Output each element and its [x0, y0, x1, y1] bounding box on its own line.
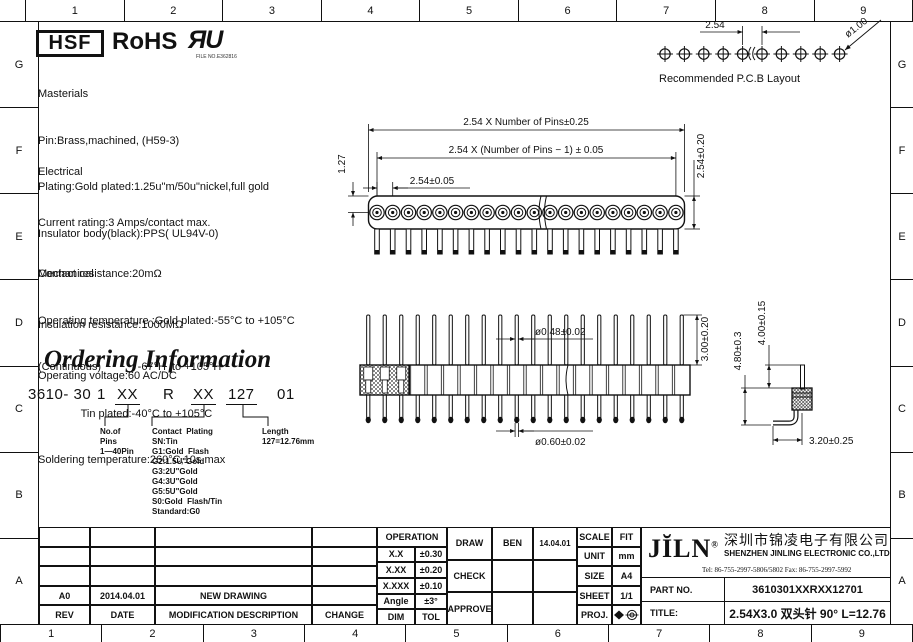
ruler-label: C	[898, 403, 906, 415]
pn-seg-01: 01	[277, 386, 295, 403]
ruler-bottom-1: 1	[0, 625, 101, 642]
company-name-en: SHENZHEN JINLING ELECTRONIC CO.,LTD	[724, 549, 890, 558]
ruler-label: 1	[48, 628, 54, 640]
rev-cell	[90, 547, 155, 567]
ruler-left-A: A	[0, 538, 38, 625]
contact-plating-label: Contact Plating SN:Tin G1:Gold Flash G2:…	[152, 427, 222, 517]
mechanical-title: Mechanical	[38, 267, 295, 283]
ruler-top-4: 4	[321, 0, 420, 21]
ruler-bottom-3: 3	[203, 625, 304, 642]
rev-cell	[90, 566, 155, 586]
ruler-bottom-5: 5	[405, 625, 506, 642]
dim-pitch: 2.54±0.05	[410, 176, 455, 187]
ruler-label: 2	[149, 628, 155, 640]
length-label: Length 127=12.76mm	[262, 427, 314, 447]
ruler-label: 2	[170, 5, 176, 17]
ruler-left-F: F	[0, 107, 38, 193]
ul-recognized-icon: ЯU	[188, 26, 222, 55]
ruler-label: C	[15, 403, 23, 415]
rohs-label: RoHS	[112, 28, 177, 56]
tol-label: X.XXX	[377, 578, 415, 594]
pn-base: 3610- 30	[28, 386, 91, 403]
ruler-label: 3	[269, 5, 275, 17]
signoff-table: DRAW BEN 14.04.01 CHECK APPROVE	[447, 527, 577, 625]
ul-mark-text: ЯU	[188, 26, 222, 54]
tol-value: TOL	[415, 609, 447, 625]
ruler-top-3: 3	[222, 0, 321, 21]
part-no-value: 3610301XXRXX12701	[725, 578, 890, 601]
top-pin-row	[367, 315, 684, 365]
ruler-left-D: D	[0, 279, 38, 365]
rev-header-change: CHANGE	[312, 605, 377, 625]
ruler-label: 8	[757, 628, 763, 640]
dim-pin-height: 4.00±0.15	[757, 300, 768, 345]
ruler-right-C: C	[891, 366, 913, 452]
ruler-label: A	[898, 575, 905, 587]
ruler-label: E	[15, 231, 22, 243]
draw-name: BEN	[492, 527, 533, 560]
sectioned-pin-profiles	[364, 367, 406, 393]
tol-value: ±0.20	[415, 562, 447, 578]
ruler-bottom-7: 7	[608, 625, 709, 642]
dim-top-pin-dia: ø0.48±0.02	[535, 327, 586, 338]
dim-overall-width: 2.54 X Number of Pins±0.25	[463, 117, 589, 128]
ruler-top-5: 5	[419, 0, 518, 21]
draw-label: DRAW	[447, 527, 492, 560]
company-name-cn: 深圳市锦凌电子有限公司	[724, 530, 889, 550]
front-view-drawing: ø0.48±0.02 ø0.60±0.02 3.00±0.20	[338, 295, 714, 460]
tol-value: ±3°	[415, 594, 447, 610]
pcb-caption: Recommended P.C.B Layout	[659, 73, 800, 85]
dim-total-height: 4.80±0.3	[733, 331, 744, 370]
ruler-label: 5	[453, 628, 459, 640]
ruler-right-A: A	[891, 538, 913, 625]
proj-label: PROJ.	[577, 605, 612, 625]
tol-label: Angle	[377, 594, 415, 610]
ruler-left-G: G	[0, 21, 38, 107]
ruler-right-E: E	[891, 193, 913, 279]
pcb-layout-drawing: 2.54 ø1.00 Recommended P.C.B Layout	[645, 18, 890, 90]
top-view-drawing: 2.54 X Number of Pins±0.25 2.54 X (Numbe…	[338, 112, 710, 262]
check-date	[533, 560, 577, 593]
mechanical-line: Operating temperature :Gold plated:-55°C…	[38, 314, 295, 330]
ruler-label: D	[898, 317, 906, 329]
hsf-logo: HSF	[36, 30, 104, 57]
connector-body-side-view	[792, 388, 812, 410]
ruler-right-B: B	[891, 452, 913, 538]
rohs-text: RoHS	[112, 28, 177, 55]
pins-count-label: No.of Pins 1—40Pin	[100, 427, 134, 457]
pn-seg-xx1: XX	[115, 386, 140, 405]
pn-seg-1: 1	[97, 386, 106, 403]
dim-bottom-pin-dia: ø0.60±0.02	[535, 437, 586, 448]
ruler-left: G F E D C B A	[0, 21, 38, 625]
rev-header-desc: MODIFICATION DESCRIPTION	[155, 605, 312, 625]
scale-value: FIT	[612, 527, 641, 547]
ruler-bottom-9: 9	[811, 625, 913, 642]
ruler-top-6: 6	[518, 0, 617, 21]
rev-header-rev: REV	[39, 605, 90, 625]
rev-change	[312, 586, 377, 606]
registered-mark: ®	[711, 539, 719, 549]
ordering-title: Ordering Information	[44, 346, 271, 374]
ruler-left-B: B	[0, 452, 38, 538]
approve-label: APPROVE	[447, 592, 492, 625]
ruler-label: 3	[251, 628, 257, 640]
company-block: JĬLN® 深圳市锦凌电子有限公司 SHENZHEN JINLING ELECT…	[641, 527, 891, 625]
rev-description: NEW DRAWING	[155, 586, 312, 606]
rev-cell	[312, 566, 377, 586]
projection-symbol-icon	[612, 605, 641, 625]
dim-top-pin-length: 3.00±0.20	[700, 316, 711, 361]
ruler-label: 6	[565, 5, 571, 17]
unit-label: UNIT	[577, 547, 612, 567]
electrical-title: Electrical	[38, 164, 210, 181]
draw-date: 14.04.01	[533, 527, 577, 560]
rev-cell	[155, 527, 312, 547]
tol-value: ±0.30	[415, 547, 447, 563]
approve-name	[492, 592, 533, 625]
sheet-value: 1/1	[612, 586, 641, 606]
check-label: CHECK	[447, 560, 492, 593]
ruler-label: B	[15, 489, 22, 501]
ruler-right: G F E D C B A	[891, 21, 913, 625]
ruler-label: 7	[663, 5, 669, 17]
check-name	[492, 560, 533, 593]
dim-foot-length: 3.20±0.25	[809, 436, 854, 447]
dim-body-depth: 2.54±0.20	[696, 133, 707, 178]
ruler-label: A	[15, 575, 22, 587]
rev-cell	[312, 527, 377, 547]
ruler-right-F: F	[891, 107, 913, 193]
tol-label: DIM	[377, 609, 415, 625]
ruler-right-D: D	[891, 279, 913, 365]
ordering-title-text: Ordering Information	[44, 346, 271, 373]
rev-cell	[39, 547, 90, 567]
drawing-sheet: 1 2 3 4 5 6 7 8 9 1 2 3 4 5 6 7 8 9 G F …	[0, 0, 913, 642]
approve-date	[533, 592, 577, 625]
ruler-top-1: 1	[25, 0, 124, 21]
dim-pin-span: 2.54 X (Number of Pins − 1) ± 0.05	[449, 145, 604, 156]
ruler-label: 8	[762, 5, 768, 17]
revision-table: A0 2014.04.01 NEW DRAWING REV DATE MODIF…	[39, 527, 377, 625]
title-label: TITLE:	[642, 602, 725, 624]
size-label: SIZE	[577, 566, 612, 586]
ruler-left-E: E	[0, 193, 38, 279]
pn-seg-127: 127	[226, 386, 257, 405]
ruler-top-2: 2	[124, 0, 223, 21]
pn-seg-r: R	[163, 386, 174, 403]
electrical-line: Current rating:3 Amps/contact max.	[38, 215, 210, 232]
dim-edge-offset: 1.27	[338, 154, 348, 174]
ruler-label: 6	[555, 628, 561, 640]
ruler-label: 1	[72, 5, 78, 17]
ruler-label: 7	[656, 628, 662, 640]
dim-pcb-hole: ø1.00	[843, 18, 870, 40]
ruler-bottom: 1 2 3 4 5 6 7 8 9	[0, 625, 913, 642]
ruler-label: G	[15, 59, 24, 71]
title-value: 2.54X3.0 双头针 90° L=12.76	[725, 602, 890, 624]
bottom-pin-row	[366, 395, 685, 423]
tol-label: X.XX	[377, 562, 415, 578]
pin-row-bottom	[375, 229, 679, 254]
tolerance-header: OPERATION	[377, 527, 447, 547]
vertical-pin	[801, 365, 805, 389]
ruler-label: B	[898, 489, 905, 501]
tolerance-table: OPERATION X.X ±0.30 X.XX ±0.20 X.XXX ±0.…	[377, 527, 447, 625]
ruler-bottom-4: 4	[304, 625, 405, 642]
rev-cell	[155, 566, 312, 586]
rev-cell	[155, 547, 312, 567]
ruler-label: 4	[352, 628, 358, 640]
ruler-bottom-2: 2	[101, 625, 202, 642]
company-logo-text: JĬLN	[648, 534, 711, 563]
side-view-drawing: 4.80±0.3 4.00±0.15 3.20±0.25	[725, 283, 890, 458]
hsf-text: HSF	[49, 32, 92, 55]
rev-date: 2014.04.01	[90, 586, 155, 606]
materials-title: Masterials	[38, 87, 269, 103]
tol-label: X.X	[377, 547, 415, 563]
ruler-bottom-6: 6	[507, 625, 608, 642]
size-value: A4	[612, 566, 641, 586]
sheet-label: SHEET	[577, 586, 612, 606]
rev-cell	[312, 547, 377, 567]
tol-value: ±0.10	[415, 578, 447, 594]
rev-cell	[90, 527, 155, 547]
rev-value: A0	[39, 586, 90, 606]
ruler-label: G	[898, 59, 907, 71]
company-logo: JĬLN®	[648, 534, 719, 564]
ruler-label: 9	[860, 5, 866, 17]
rev-cell	[39, 527, 90, 547]
ruler-label: F	[899, 145, 906, 157]
ruler-label: 4	[367, 5, 373, 17]
scale-label: SCALE	[577, 527, 612, 547]
ruler-label: E	[898, 231, 905, 243]
rev-header-date: DATE	[90, 605, 155, 625]
dim-pcb-pitch: 2.54	[705, 20, 725, 31]
part-no-label: PART NO.	[642, 578, 725, 601]
ruler-label: F	[16, 145, 23, 157]
company-contact: Tel: 86-755-2997-5806/5802 Fax: 86-755-2…	[702, 566, 851, 574]
ruler-label: D	[15, 317, 23, 329]
ruler-right-G: G	[891, 21, 913, 107]
rev-cell	[39, 566, 90, 586]
ruler-bottom-8: 8	[709, 625, 810, 642]
unit-value: mm	[612, 547, 641, 567]
info-table: SCALE FIT UNIT mm SIZE A4 SHEET 1/1 PROJ…	[577, 527, 641, 625]
pn-seg-xx2: XX	[191, 386, 216, 405]
ruler-label: 5	[466, 5, 472, 17]
ruler-label: 9	[859, 628, 865, 640]
